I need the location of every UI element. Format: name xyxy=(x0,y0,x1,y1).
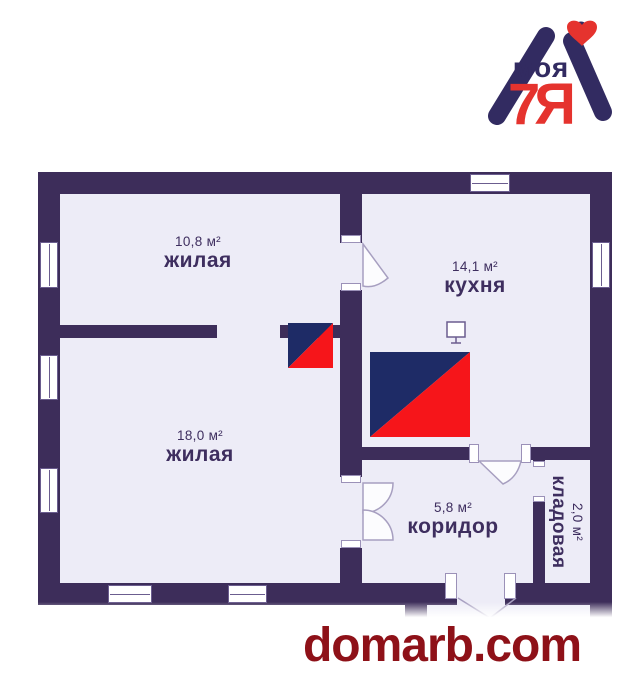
logo-text-main: 7Я xyxy=(508,72,572,137)
window xyxy=(470,174,510,192)
room-label-corridor: 5,8 м² коридор xyxy=(368,500,538,538)
window xyxy=(592,242,610,288)
room-label-living-small: 10,8 м² жилая xyxy=(113,234,283,272)
room-area: 2,0 м² xyxy=(569,437,585,607)
screenshot-canvas: моя 7Я xyxy=(0,0,630,688)
wall-right xyxy=(590,172,612,605)
room-name: кладовая xyxy=(547,437,569,607)
window xyxy=(40,468,58,513)
window xyxy=(40,355,58,400)
brand-logo: моя 7Я xyxy=(475,12,625,138)
window xyxy=(108,585,152,603)
tv-icon xyxy=(445,321,467,347)
logo-house-icon: моя 7Я xyxy=(475,12,625,138)
room-label-kitchen: 14,1 м² кухня xyxy=(390,259,560,297)
room-name: жилая xyxy=(113,250,283,272)
wall-rooms-divider-a xyxy=(60,325,217,338)
door-jamb xyxy=(341,540,361,548)
watermark-square-small xyxy=(288,323,333,368)
wall-center-b xyxy=(340,290,362,477)
door-kitchen-corridor xyxy=(477,460,527,496)
room-name: кухня xyxy=(390,275,560,297)
watermark-square-large xyxy=(370,352,470,437)
room-label-living-large: 18,0 м² жилая xyxy=(115,428,285,466)
room-area: 14,1 м² xyxy=(390,259,560,275)
room-area: 10,8 м² xyxy=(113,234,283,250)
room-name: коридор xyxy=(368,516,538,538)
door-jamb xyxy=(341,235,361,243)
door-jamb xyxy=(341,475,361,483)
floor-plan: 10,8 м² жилая 18,0 м² жилая 14,1 м² кухн… xyxy=(38,172,612,620)
room-name: жилая xyxy=(115,444,285,466)
wall-kitchen-corridor-a xyxy=(362,447,473,460)
door-jamb xyxy=(445,573,457,599)
logo-roof-right xyxy=(572,41,603,112)
site-watermark: domarb.com xyxy=(232,618,630,673)
window xyxy=(228,585,267,603)
wall-center-c xyxy=(340,548,362,583)
door-jamb xyxy=(504,573,516,599)
window xyxy=(40,242,58,288)
room-area: 18,0 м² xyxy=(115,428,285,444)
door-jamb xyxy=(341,283,361,291)
room-label-storage: 2,0 м² кладовая xyxy=(543,437,585,607)
wall-top xyxy=(38,172,612,194)
room-area: 5,8 м² xyxy=(368,500,538,516)
